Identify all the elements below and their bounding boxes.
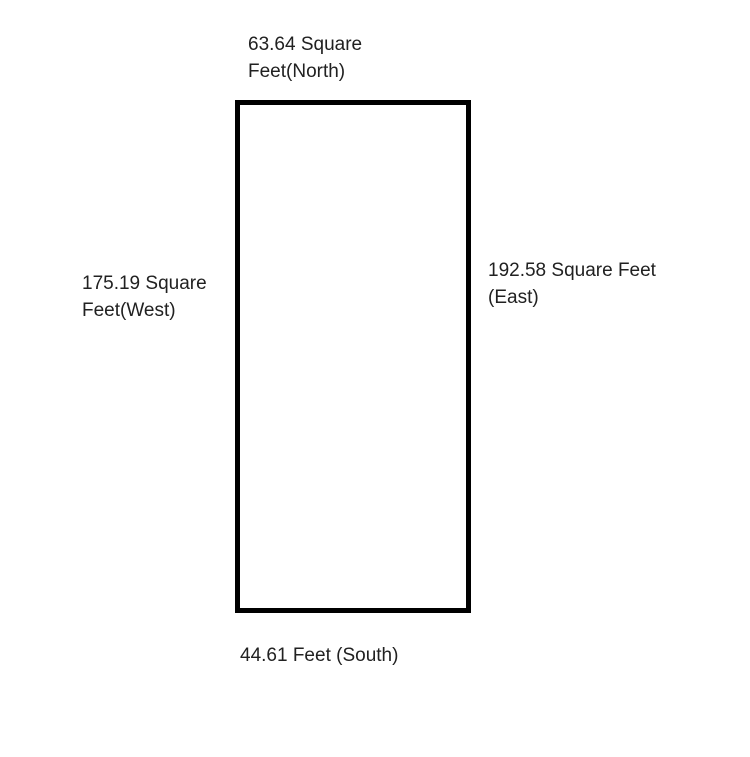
parcel-rectangle	[235, 100, 471, 613]
west-side-label: 175.19 Square Feet(West)	[82, 270, 232, 324]
parcel-diagram: 63.64 Square Feet(North) 175.19 Square F…	[0, 0, 750, 757]
east-side-label: 192.58 Square Feet (East)	[488, 257, 688, 311]
north-side-label: 63.64 Square Feet(North)	[248, 31, 388, 85]
south-side-label: 44.61 Feet (South)	[240, 642, 490, 669]
